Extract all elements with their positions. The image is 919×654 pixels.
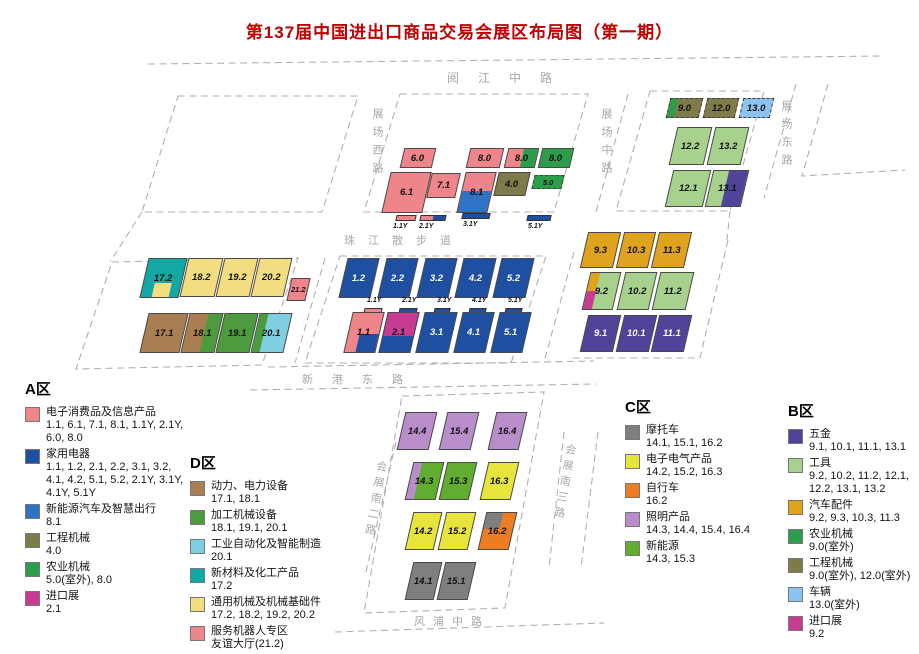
legend-swatch <box>25 591 40 606</box>
hall-4-0: 4.0 <box>493 172 531 196</box>
hall-label: 8.0 <box>515 153 528 164</box>
hall-label: 19.1 <box>228 328 247 339</box>
hall-label: 9.0 <box>678 103 691 114</box>
legend-item: 照明产品14.3, 14.4, 15.4, 16.4 <box>625 511 785 537</box>
hall-label: 7.1 <box>437 180 450 191</box>
ylabel-1-1y-north: 1.1Y <box>393 223 407 230</box>
legend-category-halls: 17.2, 18.2, 19.2, 20.2 <box>211 609 321 622</box>
legend-swatch <box>625 425 640 440</box>
legend-category-halls: 17.2 <box>211 580 299 593</box>
hall-label: 13.0 <box>747 103 766 114</box>
ylabel-3-1y: 3.1Y <box>437 297 451 304</box>
hall-label: 14.4 <box>408 426 427 437</box>
legend-swatch <box>25 504 40 519</box>
hall-label: 10.2 <box>628 286 647 297</box>
hall-label: 12.0 <box>712 103 731 114</box>
hall-label: 8.1 <box>470 187 483 198</box>
legend-title-c: C区 <box>625 396 785 417</box>
hall-7-1: 7.1 <box>426 173 461 198</box>
legend-category-halls: 5.0(室外), 8.0 <box>46 574 112 587</box>
ylabel-2-1y: 2.1Y <box>402 297 416 304</box>
legend-area-b: B区 五金9.1, 10.1, 11.1, 13.1 工具9.2, 10.2, … <box>788 400 918 644</box>
legend-item: 摩托车14.1, 15.1, 16.2 <box>625 424 785 450</box>
legend-category-label: 服务机器人专区 <box>211 625 288 638</box>
hall-label: 4.2 <box>469 273 482 284</box>
street-label-zhujiang: 珠江散步道 <box>344 232 464 248</box>
hall-label: 16.4 <box>498 426 517 437</box>
exhibition-layout-map: 第137届中国进出口商品交易会展区布局图（第一期） 阅江中路 展场西路 展场中路… <box>0 0 919 654</box>
hall-label: 18.1 <box>193 328 212 339</box>
hall-label: 21.2 <box>291 285 306 294</box>
legend-item: 工业自动化及智能制造20.1 <box>190 538 370 564</box>
hall-label: 17.1 <box>155 328 174 339</box>
legend-item: 服务机器人专区友谊大厅(21.2) <box>190 625 370 651</box>
legend-category-halls: 2.1 <box>46 603 79 616</box>
hall-label: 9.2 <box>595 286 608 297</box>
legend-swatch <box>190 510 205 525</box>
hall-label: 20.2 <box>262 272 281 283</box>
hall-label: 12.1 <box>679 183 698 194</box>
hall-label: 16.3 <box>490 476 509 487</box>
legend-category-label: 进口展 <box>46 590 79 603</box>
street-label-fengpu: 风浦中路 <box>414 613 490 629</box>
strip-1-1y-north <box>395 215 416 221</box>
hall-label: 3.1 <box>430 327 443 338</box>
legend-swatch <box>625 512 640 527</box>
legend-item: 农业机械5.0(室外), 8.0 <box>25 561 185 587</box>
hall-12-0: 12.0 <box>703 98 740 118</box>
legend-category-halls: 9.2, 10.2, 11.2, 12.1, 12.2, 13.1, 13.2 <box>809 470 918 496</box>
hall-label: 6.0 <box>411 153 424 164</box>
legend-category-halls: 9.1, 10.1, 11.1, 13.1 <box>809 441 906 454</box>
hall-split-region <box>152 283 172 297</box>
legend-area-d: D区 动力、电力设备17.1, 18.1 加工机械设备18.1, 19.1, 2… <box>190 452 370 654</box>
legend-category-label: 新材料及化工产品 <box>211 567 299 580</box>
legend-category-halls: 4.0 <box>46 545 90 558</box>
legend-category-halls: 14.1, 15.1, 16.2 <box>646 437 722 450</box>
ylabel-5-1y-north: 5.1Y <box>528 223 542 230</box>
hall-label: 14.3 <box>415 476 434 487</box>
legend-category-label: 新能源 <box>646 540 695 553</box>
hall-label: 10.3 <box>627 245 646 256</box>
legend-item: 新能源14.3, 15.3 <box>625 540 785 566</box>
legend-item: 新材料及化工产品17.2 <box>190 567 370 593</box>
hall-6-0: 6.0 <box>400 148 437 168</box>
hall-label: 10.1 <box>627 328 646 339</box>
legend-category-label: 五金 <box>809 428 906 441</box>
legend-item: 车辆13.0(室外) <box>788 586 918 612</box>
legend-area-a: A区 电子消费品及信息产品1.1, 6.1, 7.1, 8.1, 1.1Y, 2… <box>25 378 185 619</box>
hall-13-0: 13.0 <box>739 98 775 118</box>
legend-category-halls: 18.1, 19.1, 20.1 <box>211 522 287 535</box>
legend-swatch <box>190 568 205 583</box>
legend-swatch <box>25 449 40 464</box>
legend-swatch <box>788 616 803 631</box>
street-label-zhanchang-zhong: 展场中路 <box>598 108 614 180</box>
legend-item: 工具9.2, 10.2, 11.2, 12.1, 12.2, 13.1, 13.… <box>788 457 918 496</box>
legend-item: 进口展2.1 <box>25 590 185 616</box>
hall-8-0-east: 8.0 <box>538 148 575 168</box>
legend-swatch <box>788 500 803 515</box>
legend-category-halls: 1.1, 1.2, 2.1, 2.2, 3.1, 3.2, 4.1, 4.2, … <box>46 461 185 500</box>
hall-label: 11.1 <box>663 328 681 339</box>
legend-item: 五金9.1, 10.1, 11.1, 13.1 <box>788 428 918 454</box>
legend-category-label: 家用电器 <box>46 448 185 461</box>
ylabel-1-1y: 1.1Y <box>367 297 381 304</box>
legend-swatch <box>25 407 40 422</box>
ylabel-2-1y-north: 2.1Y <box>419 223 433 230</box>
hall-label: 2.2 <box>391 273 404 284</box>
hall-label: 11.3 <box>663 245 681 256</box>
legend-swatch <box>625 454 640 469</box>
legend-swatch <box>190 597 205 612</box>
legend-item: 工程机械9.0(室外), 12.0(室外) <box>788 557 918 583</box>
legend-swatch <box>190 539 205 554</box>
legend-swatch <box>25 533 40 548</box>
hall-label: 4.0 <box>505 179 518 190</box>
hall-label: 14.2 <box>414 526 433 537</box>
legend-title-d: D区 <box>190 452 370 473</box>
legend-swatch <box>788 558 803 573</box>
hall-label: 15.4 <box>450 426 469 437</box>
legend-swatch <box>190 481 205 496</box>
legend-category-label: 工程机械 <box>809 557 910 570</box>
legend-category-label: 自行车 <box>646 482 679 495</box>
hall-label: 1.2 <box>352 273 365 284</box>
hall-split-region <box>433 216 446 220</box>
strip-2-1y-north <box>419 215 446 221</box>
hall-label: 20.1 <box>262 328 281 339</box>
legend-swatch <box>788 587 803 602</box>
ylabel-4-1y: 4.1Y <box>472 297 486 304</box>
legend-category-halls: 9.0(室外), 12.0(室外) <box>809 570 910 583</box>
hall-label: 16.2 <box>488 526 507 537</box>
legend-category-halls: 友谊大厅(21.2) <box>211 638 288 651</box>
hall-label: 19.2 <box>228 272 247 283</box>
hall-8-0-mid: 8.0 <box>504 148 540 168</box>
hall-label: 9.3 <box>594 245 607 256</box>
legend-category-label: 电子电气产品 <box>646 453 722 466</box>
ylabel-3-1y-north: 3.1Y <box>463 221 477 228</box>
legend-category-halls: 14.3, 15.3 <box>646 553 695 566</box>
hall-label: 8.0 <box>478 153 491 164</box>
hall-label: 15.3 <box>449 476 468 487</box>
hall-label: 6.1 <box>400 187 413 198</box>
strip-3-1y-north <box>461 213 490 219</box>
legend-swatch <box>788 458 803 473</box>
legend-category-label: 动力、电力设备 <box>211 480 288 493</box>
legend-category-halls: 1.1, 6.1, 7.1, 8.1, 1.1Y, 2.1Y, 6.0, 8.0 <box>46 419 185 445</box>
hall-label: 3.2 <box>430 273 443 284</box>
hall-label: 4.1 <box>467 327 480 338</box>
legend-category-label: 汽车配件 <box>809 499 900 512</box>
hall-label: 8.0 <box>549 153 562 164</box>
legend-swatch <box>625 483 640 498</box>
legend-category-label: 进口展 <box>809 615 842 628</box>
legend-category-halls: 9.2, 9.3, 10.3, 11.3 <box>809 512 900 525</box>
legend-category-label: 新能源汽车及智慧出行 <box>46 503 156 516</box>
legend-category-label: 摩托车 <box>646 424 722 437</box>
legend-category-label: 照明产品 <box>646 511 750 524</box>
street-label-zhanchang-dong: 展场东路 <box>778 100 794 172</box>
legend-category-label: 工程机械 <box>46 532 90 545</box>
hall-label: 9.1 <box>594 328 607 339</box>
legend-swatch <box>25 562 40 577</box>
legend-item: 电子消费品及信息产品1.1, 6.1, 7.1, 8.1, 1.1Y, 2.1Y… <box>25 406 185 445</box>
legend-category-halls: 14.3, 14.4, 15.4, 16.4 <box>646 524 750 537</box>
legend-item: 通用机械及机械基础件17.2, 18.2, 19.2, 20.2 <box>190 596 370 622</box>
hall-label: 5.1 <box>504 327 517 338</box>
legend-title-a: A区 <box>25 378 185 399</box>
street-label-zhanchang-xi: 展场西路 <box>369 108 385 180</box>
hall-label: 13.2 <box>719 141 738 152</box>
legend-item: 进口展9.2 <box>788 615 918 641</box>
legend-area-c: C区 摩托车14.1, 15.1, 16.2 电子电气产品14.2, 15.2,… <box>625 396 785 569</box>
hall-label: 13.1 <box>718 183 737 194</box>
hall-5-0: 5.0 <box>531 175 564 189</box>
legend-category-label: 电子消费品及信息产品 <box>46 406 185 419</box>
legend-category-label: 通用机械及机械基础件 <box>211 596 321 609</box>
legend-category-halls: 14.2, 15.2, 16.3 <box>646 466 722 479</box>
legend-item: 汽车配件9.2, 9.3, 10.3, 11.3 <box>788 499 918 525</box>
hall-label: 15.2 <box>448 526 467 537</box>
hall-label: 5.2 <box>507 273 520 284</box>
hall-label: 15.1 <box>447 576 466 587</box>
hall-label: 2.1 <box>392 327 405 338</box>
legend-category-label: 车辆 <box>809 586 860 599</box>
legend-category-halls: 9.0(室外) <box>809 541 854 554</box>
legend-item: 工程机械4.0 <box>25 532 185 558</box>
legend-item: 农业机械9.0(室外) <box>788 528 918 554</box>
legend-swatch <box>190 626 205 641</box>
hall-label: 5.0 <box>543 178 553 187</box>
hall-label: 18.2 <box>192 272 211 283</box>
legend-category-label: 工业自动化及智能制造 <box>211 538 321 551</box>
legend-item: 新能源汽车及智慧出行8.1 <box>25 503 185 529</box>
legend-item: 加工机械设备18.1, 19.1, 20.1 <box>190 509 370 535</box>
hall-8-0-west: 8.0 <box>466 148 505 168</box>
legend-item: 家用电器1.1, 1.2, 2.1, 2.2, 3.1, 3.2, 4.1, 4… <box>25 448 185 500</box>
legend-item: 自行车16.2 <box>625 482 785 508</box>
legend-category-halls: 9.2 <box>809 628 842 641</box>
legend-title-b: B区 <box>788 400 918 421</box>
hall-split-region <box>667 99 679 117</box>
legend-category-halls: 17.1, 18.1 <box>211 493 288 506</box>
legend-item: 动力、电力设备17.1, 18.1 <box>190 480 370 506</box>
legend-swatch <box>788 529 803 544</box>
legend-category-label: 加工机械设备 <box>211 509 287 522</box>
hall-label: 1.1 <box>357 327 370 338</box>
hall-label: 14.1 <box>414 576 433 587</box>
legend-category-label: 农业机械 <box>46 561 112 574</box>
strip-5-1y-north <box>526 215 551 221</box>
hall-label: 17.2 <box>154 273 173 284</box>
legend-category-label: 农业机械 <box>809 528 854 541</box>
street-label-xingang-dong: 新港东路 <box>302 371 422 387</box>
hall-label: 11.2 <box>664 286 682 297</box>
legend-category-label: 工具 <box>809 457 918 470</box>
ylabel-5-1y: 5.1Y <box>508 297 522 304</box>
legend-item: 电子电气产品14.2, 15.2, 16.3 <box>625 453 785 479</box>
legend-swatch <box>625 541 640 556</box>
hall-9-0: 9.0 <box>666 98 704 118</box>
street-label-yuejiang: 阅江中路 <box>447 69 571 86</box>
legend-category-halls: 8.1 <box>46 516 156 529</box>
legend-category-halls: 16.2 <box>646 495 679 508</box>
hall-label: 12.2 <box>681 141 700 152</box>
legend-category-halls: 13.0(室外) <box>809 599 860 612</box>
legend-swatch <box>788 429 803 444</box>
legend-category-halls: 20.1 <box>211 551 321 564</box>
